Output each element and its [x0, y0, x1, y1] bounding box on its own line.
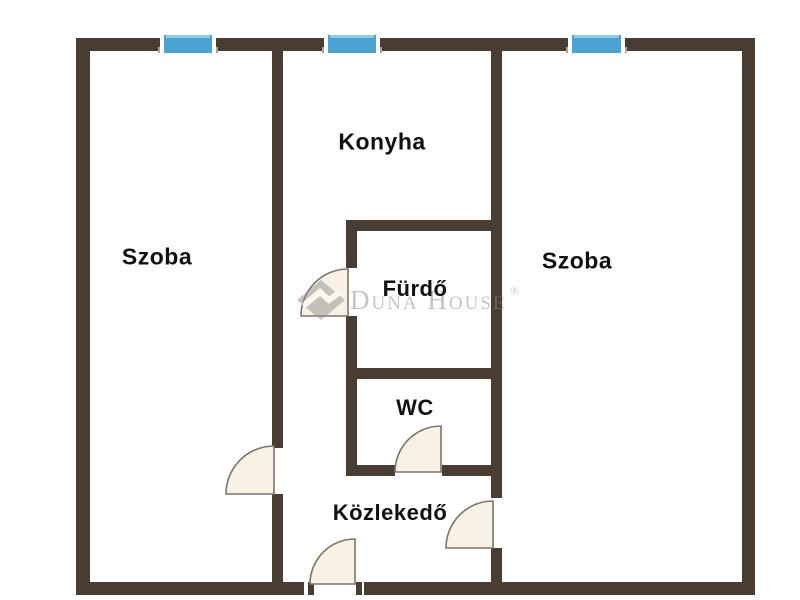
wall-exterior-left [76, 38, 90, 595]
wall-exterior-bottom-left [76, 582, 304, 595]
wall-furdo-left-upper [346, 220, 357, 268]
wall-szoba-right-upper [491, 51, 502, 498]
room-label-furdo: Fürdő [383, 276, 448, 302]
wall-wc-bottom-left [346, 465, 395, 476]
window-konyha [324, 36, 380, 53]
wall-exterior-right [742, 38, 755, 595]
wall-furdo-left-lower [346, 316, 357, 368]
room-label-konyha: Konyha [338, 129, 425, 156]
wall-szoba-left-upper [272, 51, 283, 448]
registered-trademark-icon: ® [511, 285, 519, 297]
wall-szoba-left-lower [272, 494, 283, 582]
wall-furdo-wc-divider [346, 368, 491, 379]
door-arc-wc [393, 424, 443, 474]
window-szoba-right [568, 36, 625, 53]
room-label-kozlekedo: Közlekedő [333, 500, 448, 526]
floorplan-canvas: Duna House ® Szoba Konyha Szoba Fürdő WC… [0, 0, 800, 600]
door-arc-szoba-left [224, 444, 276, 496]
room-label-wc: WC [396, 395, 434, 421]
door-arc-entry [308, 537, 357, 586]
wall-wc-left [346, 379, 357, 465]
room-label-szoba-right: Szoba [542, 248, 612, 275]
room-label-szoba-left: Szoba [122, 244, 192, 271]
wall-szoba-right-lower [491, 548, 502, 582]
wall-exterior-bottom-right [364, 582, 755, 595]
door-arc-furdo [299, 267, 350, 318]
wall-furdo-top [346, 220, 491, 231]
door-arc-szoba-right [444, 499, 495, 550]
wall-wc-bottom-right [442, 465, 491, 476]
window-szoba-left [160, 36, 216, 53]
